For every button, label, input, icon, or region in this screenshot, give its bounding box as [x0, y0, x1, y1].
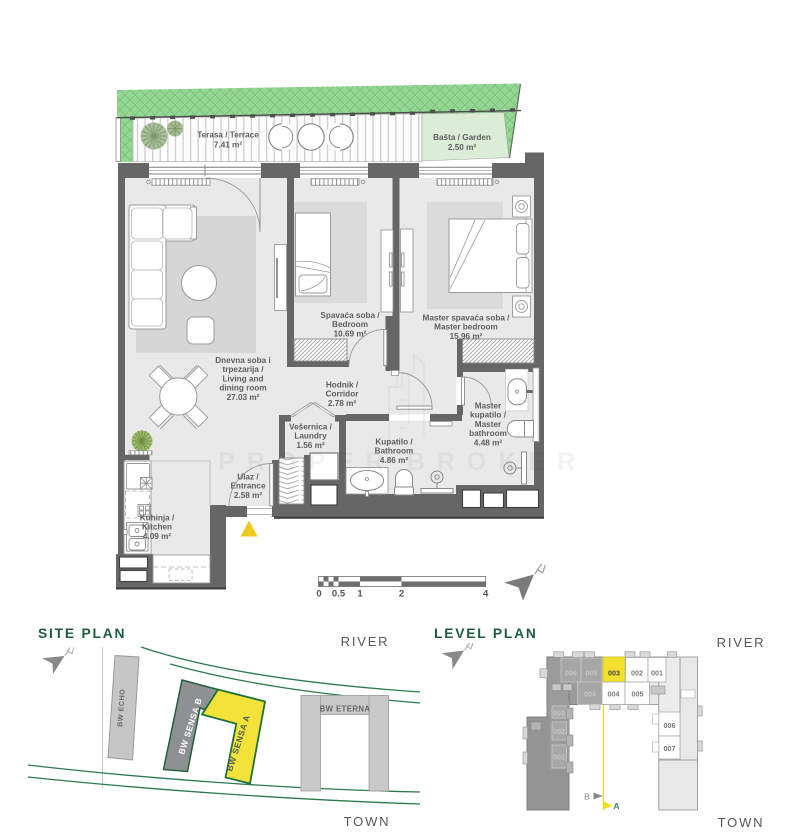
- svg-text:1.56 m²: 1.56 m²: [296, 441, 324, 450]
- svg-text:Master: Master: [475, 420, 502, 429]
- svg-text:001: 001: [553, 753, 565, 762]
- svg-text:Dnevna soba i: Dnevna soba i: [215, 356, 271, 365]
- svg-text:007: 007: [664, 744, 676, 753]
- svg-text:003: 003: [553, 709, 565, 718]
- svg-text:RIVER: RIVER: [717, 635, 766, 650]
- svg-text:A: A: [613, 801, 619, 811]
- svg-text:bathroom: bathroom: [469, 429, 507, 438]
- svg-text:4.48 m²: 4.48 m²: [474, 438, 502, 447]
- svg-text:TOWN: TOWN: [718, 815, 765, 830]
- svg-text:002: 002: [631, 669, 643, 678]
- svg-text:005: 005: [586, 669, 598, 678]
- svg-text:27.03 m²: 27.03 m²: [227, 393, 260, 402]
- svg-text:Laundry: Laundry: [294, 432, 327, 441]
- svg-text:0: 0: [316, 589, 321, 600]
- svg-text:005: 005: [632, 690, 644, 699]
- svg-text:4.86 m²: 4.86 m²: [380, 456, 408, 465]
- svg-text:004: 004: [584, 690, 596, 699]
- svg-text:Master bedroom: Master bedroom: [434, 323, 498, 332]
- svg-text:Bedroom: Bedroom: [332, 320, 368, 329]
- svg-text:TOWN: TOWN: [344, 814, 391, 829]
- svg-text:BROKER: BROKER: [407, 448, 587, 476]
- svg-text:Kupatilo /: Kupatilo /: [375, 438, 413, 447]
- svg-text:SITE PLAN: SITE PLAN: [38, 626, 126, 641]
- svg-text:001: 001: [651, 669, 663, 678]
- svg-text:Corridor: Corridor: [326, 390, 360, 399]
- svg-text:B: B: [584, 792, 590, 802]
- svg-text:7.41 m²: 7.41 m²: [214, 140, 242, 149]
- svg-text:15.96 m²: 15.96 m²: [450, 332, 483, 341]
- svg-text:trpezarija /: trpezarija /: [223, 365, 265, 374]
- svg-text:002: 002: [553, 727, 565, 736]
- svg-text:004: 004: [608, 690, 620, 699]
- svg-text:Kitchen: Kitchen: [142, 523, 172, 532]
- svg-text:006: 006: [565, 669, 577, 678]
- svg-text:Bathroom: Bathroom: [375, 447, 414, 456]
- svg-text:LEVEL PLAN: LEVEL PLAN: [434, 626, 538, 641]
- svg-text:BW ETERNA: BW ETERNA: [320, 705, 371, 714]
- svg-text:4.09 m²: 4.09 m²: [143, 532, 171, 541]
- svg-text:2.78 m²: 2.78 m²: [328, 399, 356, 408]
- svg-text:003: 003: [608, 669, 620, 678]
- svg-text:4: 4: [483, 589, 489, 600]
- svg-text:Kuhinja /: Kuhinja /: [140, 514, 175, 523]
- svg-text:10.69 m²: 10.69 m²: [334, 329, 367, 338]
- svg-text:Vešernica /: Vešernica /: [289, 423, 333, 432]
- svg-text:Hodnik /: Hodnik /: [326, 381, 359, 390]
- svg-text:Ulaz /: Ulaz /: [237, 473, 259, 482]
- svg-text:1: 1: [357, 589, 363, 600]
- svg-text:Entrance: Entrance: [230, 482, 265, 491]
- svg-text:0.5: 0.5: [332, 589, 346, 600]
- svg-text:Terasa / Terrace: Terasa / Terrace: [197, 131, 259, 140]
- svg-text:2.50 m²: 2.50 m²: [448, 143, 476, 152]
- svg-text:2: 2: [399, 589, 404, 600]
- svg-text:Living and: Living and: [223, 374, 264, 383]
- svg-text:Master: Master: [475, 402, 502, 411]
- svg-text:2.58 m²: 2.58 m²: [234, 491, 262, 500]
- svg-text:RIVER: RIVER: [341, 634, 390, 649]
- svg-text:kupatilo /: kupatilo /: [470, 411, 507, 420]
- svg-text:Spavaća soba /: Spavaća soba /: [320, 311, 380, 320]
- svg-text:Master spavaća soba /: Master spavaća soba /: [423, 314, 511, 323]
- svg-text:dining room: dining room: [219, 384, 266, 393]
- svg-text:Bašta / Garden: Bašta / Garden: [433, 133, 491, 142]
- svg-text:006: 006: [664, 721, 676, 730]
